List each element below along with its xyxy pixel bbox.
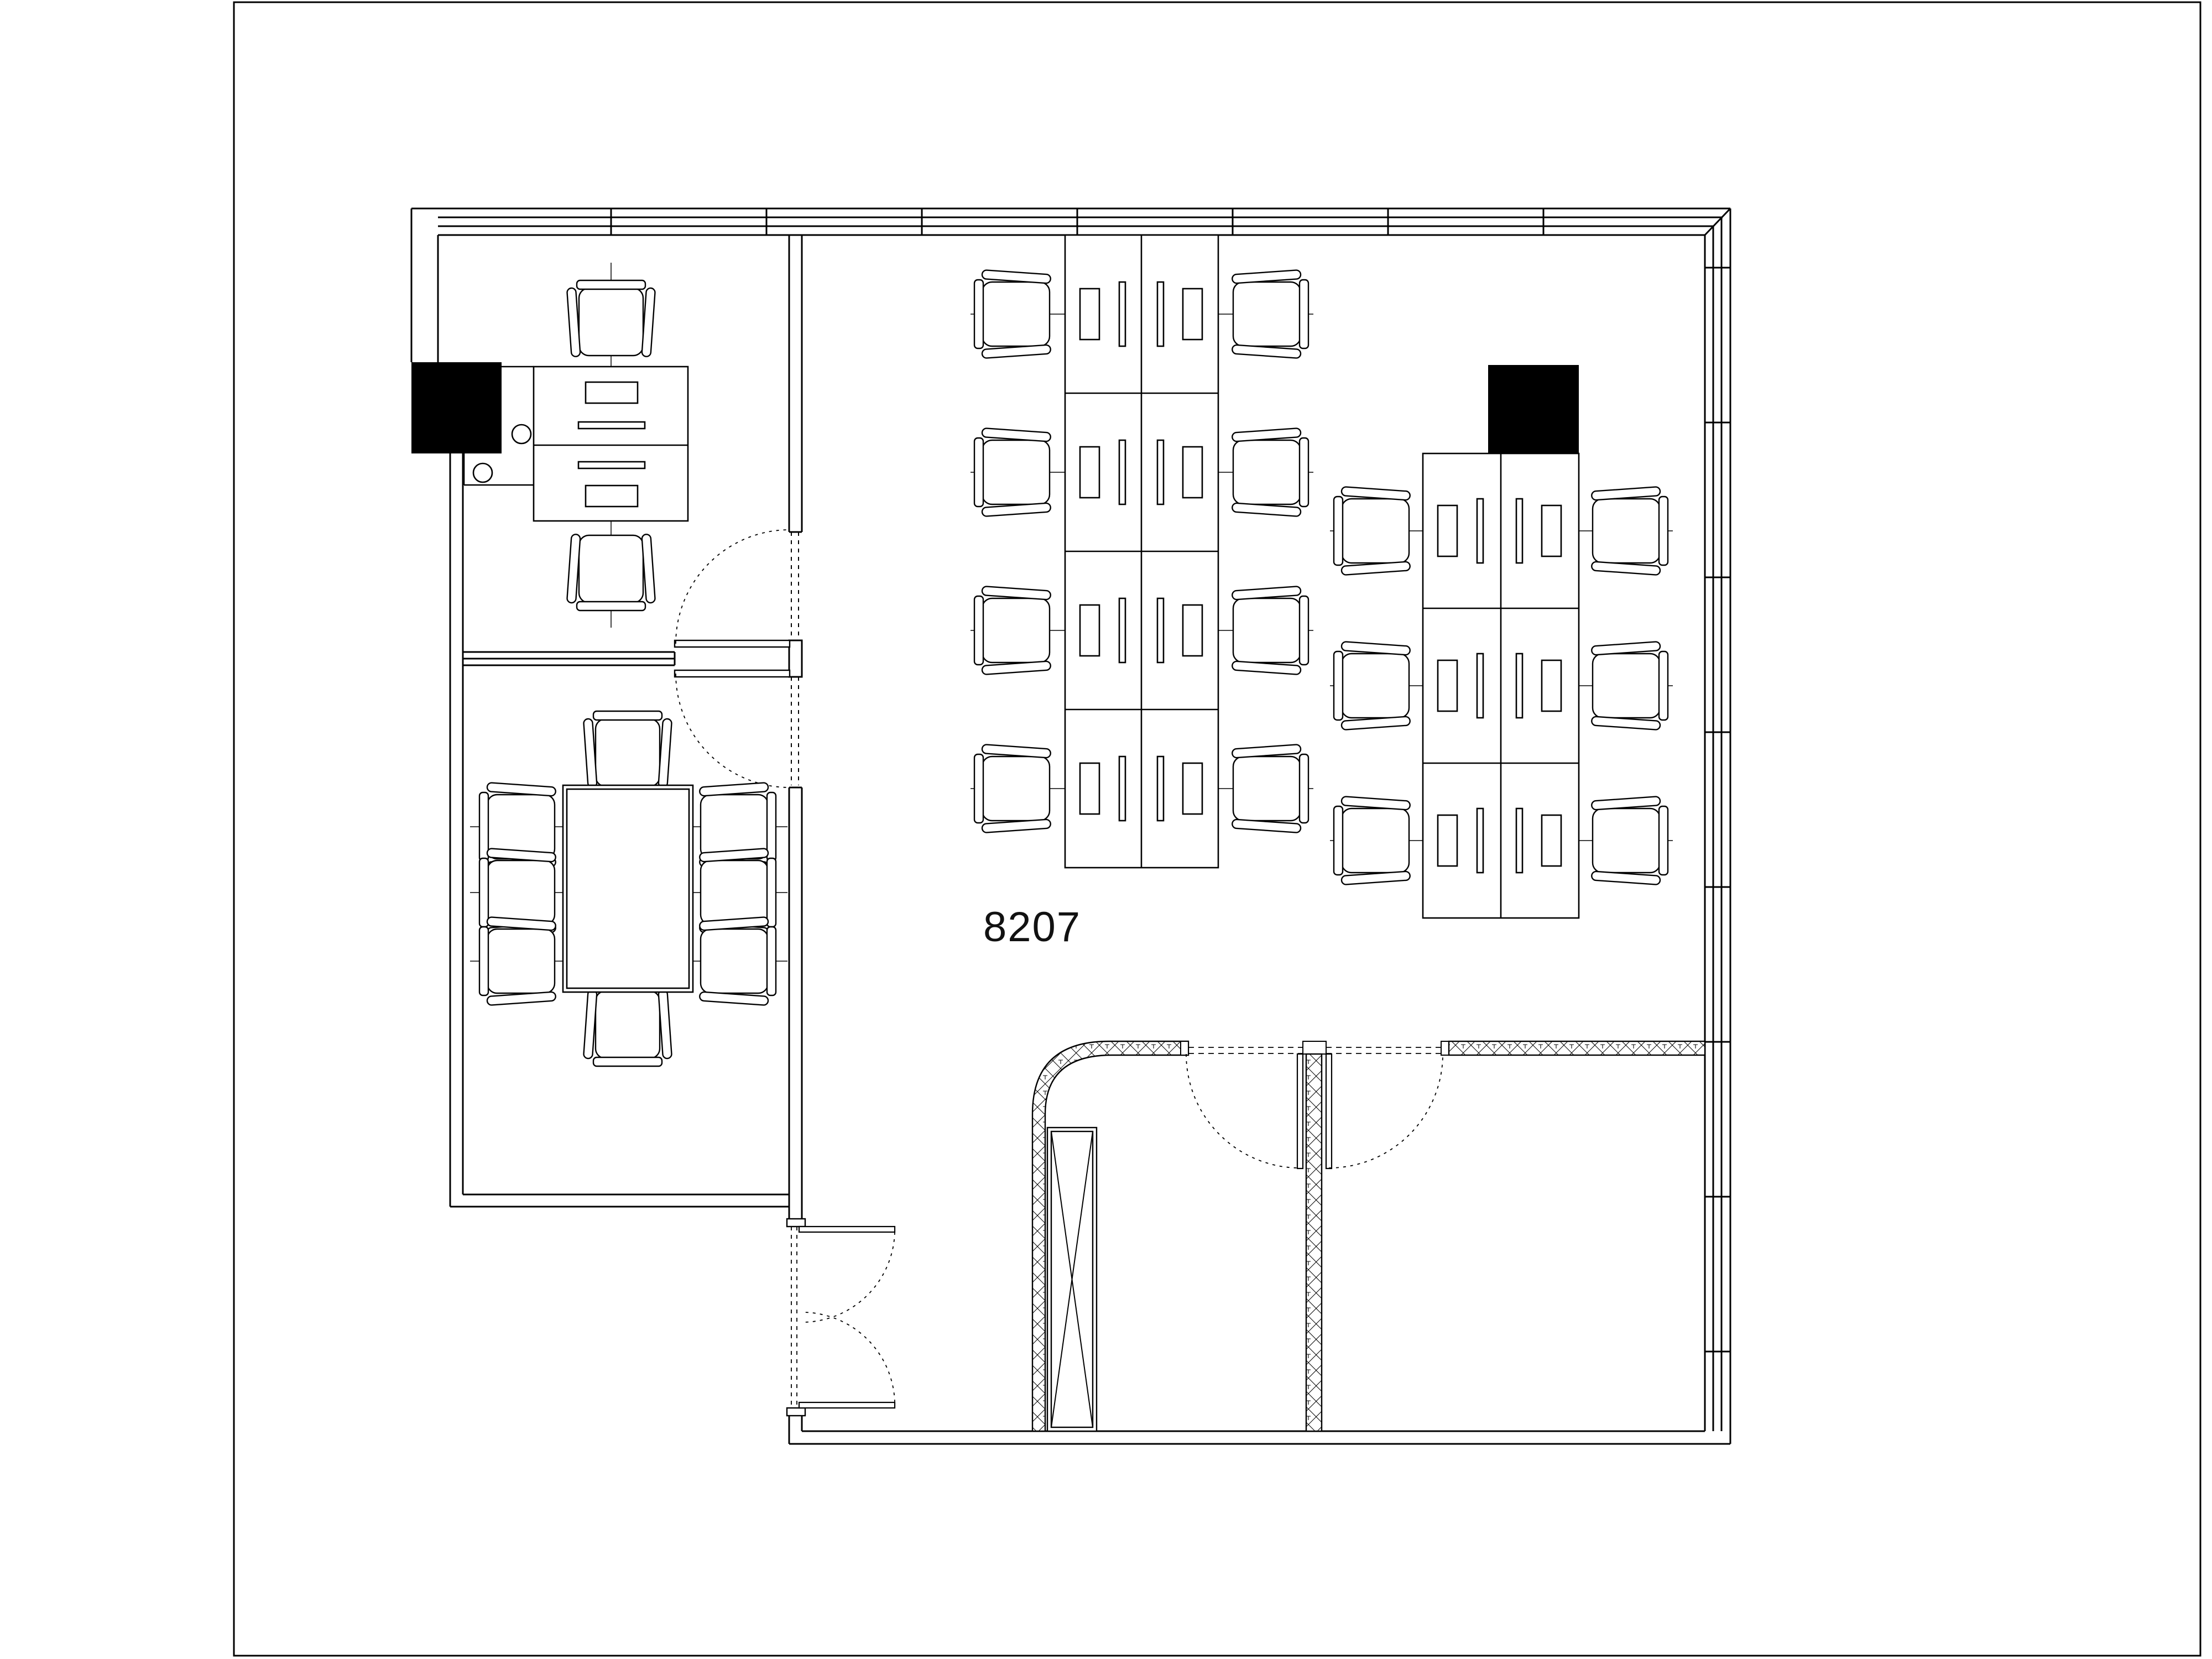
- door-leaf: [799, 1402, 895, 1408]
- door-leaf: [1326, 1054, 1332, 1168]
- chair-icon: [1334, 796, 1410, 885]
- floorplan-sheet: 8207: [0, 0, 2212, 1659]
- floorplan-drawing: 8207: [0, 0, 2212, 1659]
- keyboard-icon: [578, 422, 645, 429]
- duct-shaft: [1047, 1128, 1097, 1431]
- entry-vestibule: [787, 1207, 895, 1444]
- exterior-wall-bottom: [789, 1431, 1730, 1444]
- chair-icon: [974, 744, 1051, 833]
- corridor-wall: [675, 235, 802, 1219]
- chair-icon: [1232, 270, 1308, 358]
- conference-table: [563, 785, 693, 992]
- conference-room: [470, 711, 787, 1066]
- door-bottom-right-room: [1326, 1054, 1443, 1168]
- window-mullions-right: [1705, 268, 1730, 1352]
- door-leaf: [799, 1227, 895, 1232]
- door-leaf: [675, 640, 790, 647]
- bottom-rooms: [1032, 1041, 1705, 1431]
- door-leaf: [1297, 1054, 1303, 1168]
- door-swing-arc: [676, 674, 790, 787]
- window-mullions-top: [611, 208, 1543, 235]
- chair-icon: [974, 270, 1051, 358]
- interior-wall-office-conference: [463, 652, 675, 665]
- monitor-icon: [586, 486, 638, 507]
- door-swing-arc: [676, 530, 790, 644]
- chair-icon: [1334, 487, 1410, 575]
- chair-icon: [974, 428, 1051, 517]
- hatched-wall-central: [1306, 1054, 1322, 1431]
- grommet-icon: [473, 463, 492, 482]
- wall-cap: [1441, 1041, 1449, 1055]
- door-bottom-left-room: [1186, 1054, 1303, 1168]
- column-left: [411, 362, 502, 453]
- chair-icon: [583, 711, 672, 787]
- hatched-wall-right: [1449, 1041, 1705, 1055]
- chair-icon: [1232, 586, 1308, 675]
- chair-icon: [583, 990, 672, 1066]
- wall-corner-miter: [1705, 208, 1730, 235]
- chair-icon: [974, 586, 1051, 675]
- chair-icon: [567, 280, 655, 357]
- door-office: [675, 530, 799, 647]
- workstation-cluster-center: [971, 235, 1313, 868]
- wall-cap: [1303, 1041, 1326, 1054]
- door-conference: [675, 670, 799, 787]
- door-jamb: [787, 1219, 805, 1227]
- wall-cap: [1181, 1041, 1188, 1055]
- door-swing-arc: [802, 1312, 895, 1402]
- door-swing-arc: [1186, 1054, 1300, 1168]
- workstation-cluster-right: [1330, 453, 1673, 918]
- door-swing-arc: [802, 1232, 895, 1322]
- chair-icon: [1232, 428, 1308, 517]
- room-number-label: 8207: [983, 904, 1081, 951]
- chair-icon: [1232, 744, 1308, 833]
- chair-icon: [567, 534, 655, 611]
- grommet-icon: [512, 425, 531, 444]
- door-jamb: [787, 1408, 805, 1416]
- chair-icon: [1592, 487, 1668, 575]
- chair-icon: [1592, 796, 1668, 885]
- door-swing-arc: [1329, 1054, 1443, 1168]
- chair-icon: [1334, 641, 1410, 730]
- column-right: [1488, 365, 1579, 456]
- door-leaf: [675, 670, 790, 677]
- monitor-icon: [586, 382, 638, 403]
- keyboard-icon: [578, 462, 645, 468]
- chair-icon: [1592, 641, 1668, 730]
